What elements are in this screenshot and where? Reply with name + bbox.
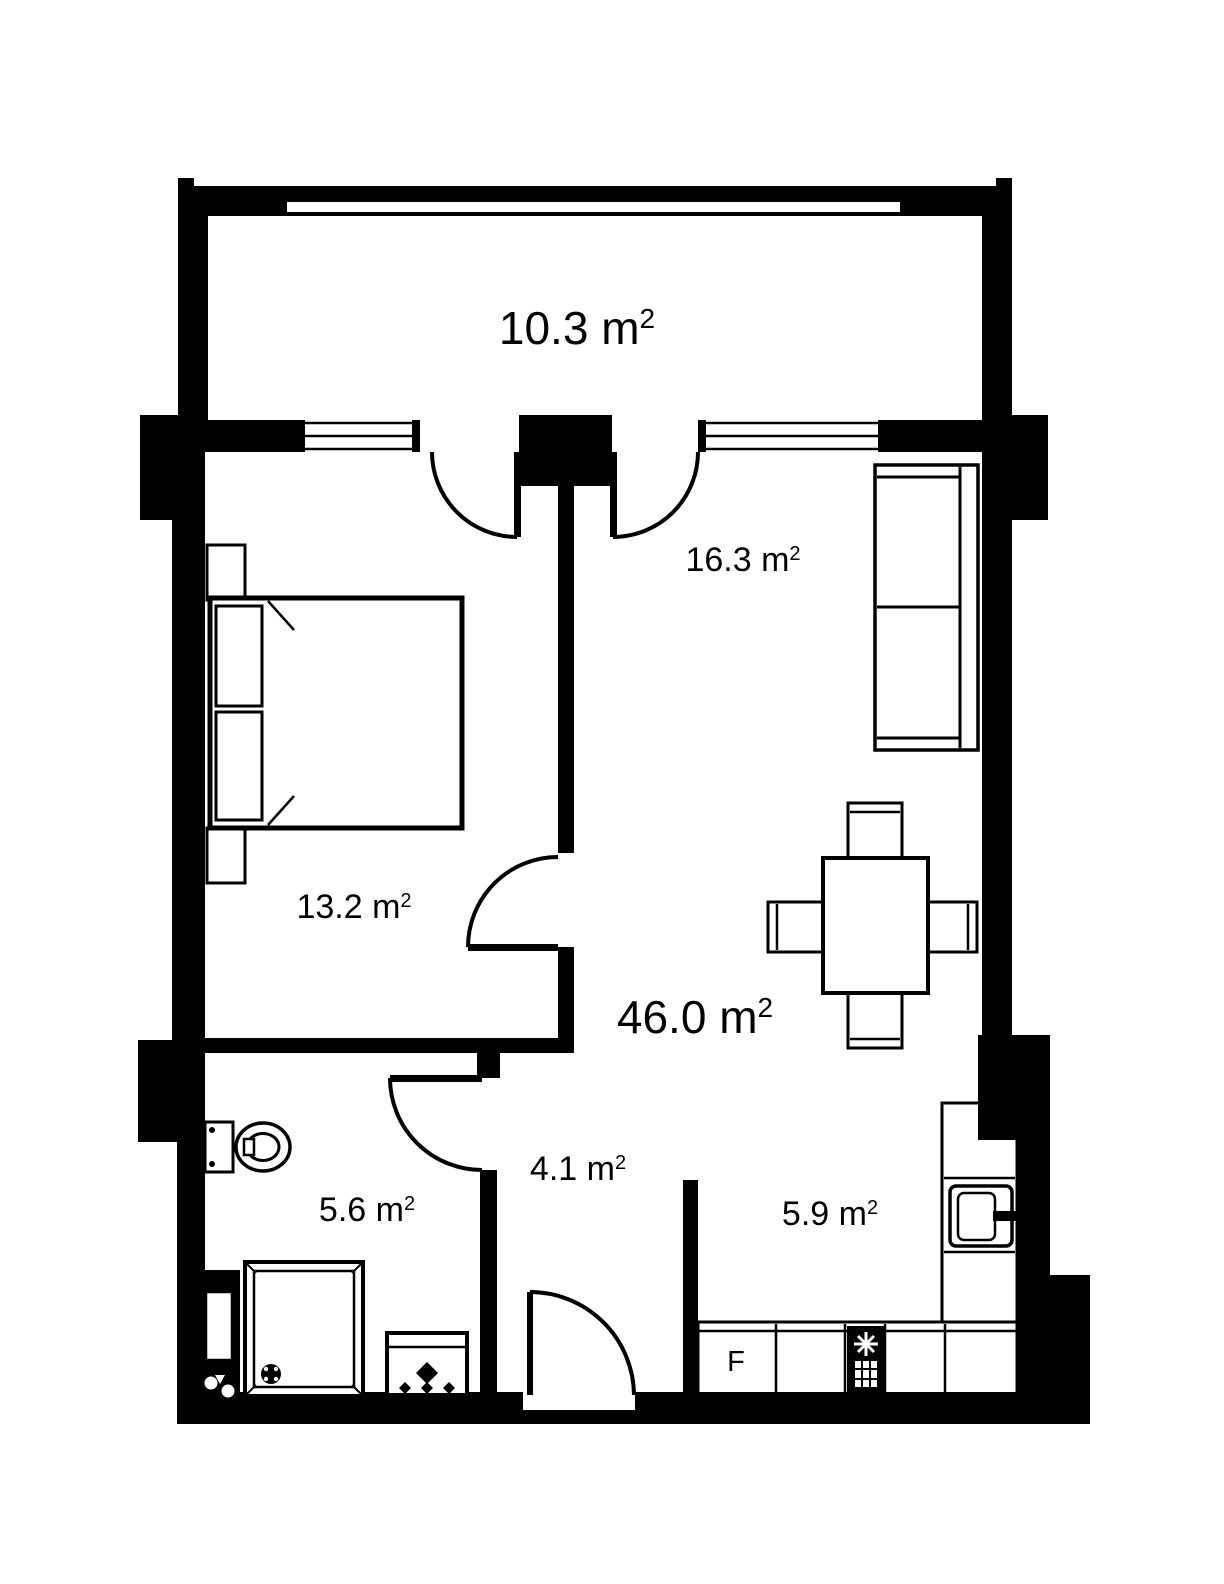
door-arc bbox=[390, 1078, 482, 1170]
area-label-living-zone: 16.3 m2 bbox=[685, 541, 800, 579]
door-arc bbox=[432, 452, 517, 537]
toilet-seat-hinge bbox=[244, 1139, 254, 1155]
door-arc bbox=[468, 857, 558, 947]
entrance-door bbox=[527, 1292, 634, 1395]
door-leaf bbox=[514, 452, 521, 537]
nightstand bbox=[207, 828, 245, 883]
balcony-door-bedroom bbox=[432, 452, 521, 537]
bedroom-door bbox=[468, 857, 558, 951]
nightstand bbox=[207, 545, 245, 600]
furniture bbox=[205, 465, 979, 1398]
dining-table bbox=[823, 858, 928, 993]
sink-faucet bbox=[993, 1211, 1017, 1221]
door-arc bbox=[613, 452, 698, 537]
area-label-bedroom: 13.2 m2 bbox=[296, 888, 411, 926]
toilet-icon bbox=[205, 1122, 290, 1172]
sofa bbox=[875, 465, 978, 750]
fridge-label: F bbox=[727, 1346, 745, 1378]
balcony-glazing bbox=[287, 202, 900, 212]
entrance-opening bbox=[523, 1392, 635, 1410]
stove-icon bbox=[847, 1326, 885, 1393]
bathroom-door bbox=[390, 1075, 482, 1170]
area-label-bathroom: 5.6 m2 bbox=[319, 1191, 415, 1229]
shower-drain bbox=[261, 1364, 281, 1384]
window-wall-segment bbox=[205, 420, 305, 452]
toilet-bolt bbox=[209, 1161, 215, 1167]
right-wall-chunk bbox=[978, 1035, 1050, 1140]
chair bbox=[848, 993, 902, 1048]
balcony-right-wall bbox=[982, 186, 1012, 452]
area-label-kitchen: 5.9 m2 bbox=[782, 1195, 878, 1233]
window-wall-pillar bbox=[519, 415, 612, 486]
door-leaf bbox=[468, 944, 558, 951]
dining-set bbox=[768, 803, 977, 1048]
area-label-balcony: 10.3 m2 bbox=[499, 302, 655, 354]
oven-box bbox=[854, 1360, 878, 1388]
sink-basin bbox=[958, 1193, 995, 1240]
bedroom-window bbox=[297, 420, 420, 452]
kitchen-partition-wall bbox=[683, 1180, 698, 1392]
door-leaf bbox=[527, 1292, 533, 1395]
window-cap bbox=[412, 420, 420, 452]
pillow bbox=[216, 606, 262, 706]
toilet-bolt bbox=[209, 1127, 215, 1133]
window-cap bbox=[698, 420, 706, 452]
bathroom-wall-stub bbox=[477, 1053, 500, 1078]
sink-icon bbox=[950, 1186, 1017, 1246]
bedroom-living-partition bbox=[558, 947, 574, 1053]
area-label-living-total: 46.0 m2 bbox=[617, 991, 773, 1043]
door-leaf bbox=[610, 452, 617, 537]
living-room-window bbox=[698, 420, 886, 452]
window-wall-segment bbox=[886, 420, 982, 452]
area-label-hallway: 4.1 m2 bbox=[530, 1150, 626, 1188]
balcony-door-living bbox=[610, 452, 698, 537]
left-exterior-wall bbox=[172, 450, 205, 1045]
right-exterior-wall bbox=[1017, 1140, 1050, 1280]
floor-plan-page: F bbox=[0, 0, 1224, 1584]
bathroom-hall-wall bbox=[480, 1170, 497, 1392]
kitchen-counter: F bbox=[698, 1103, 1017, 1395]
bed bbox=[210, 598, 462, 828]
bedroom-living-partition bbox=[558, 486, 574, 853]
left-pier bbox=[138, 1040, 205, 1142]
door-arc bbox=[530, 1292, 634, 1395]
washing-machine-icon bbox=[387, 1333, 467, 1395]
chair bbox=[848, 803, 902, 860]
shower-icon bbox=[245, 1262, 363, 1396]
doors bbox=[390, 452, 698, 1395]
pillow bbox=[216, 712, 262, 820]
chair bbox=[768, 902, 823, 952]
duct-shaft bbox=[206, 1292, 232, 1360]
window-cap bbox=[878, 420, 886, 452]
right-pier bbox=[1012, 415, 1048, 520]
chair bbox=[928, 902, 977, 952]
balcony-left-wall bbox=[178, 186, 208, 452]
window-cap bbox=[297, 420, 305, 452]
bedroom-bottom-wall bbox=[205, 1038, 574, 1053]
door-leaf bbox=[390, 1075, 482, 1082]
right-exterior-wall bbox=[982, 450, 1012, 1040]
floor-plan-svg: F bbox=[0, 0, 1224, 1584]
